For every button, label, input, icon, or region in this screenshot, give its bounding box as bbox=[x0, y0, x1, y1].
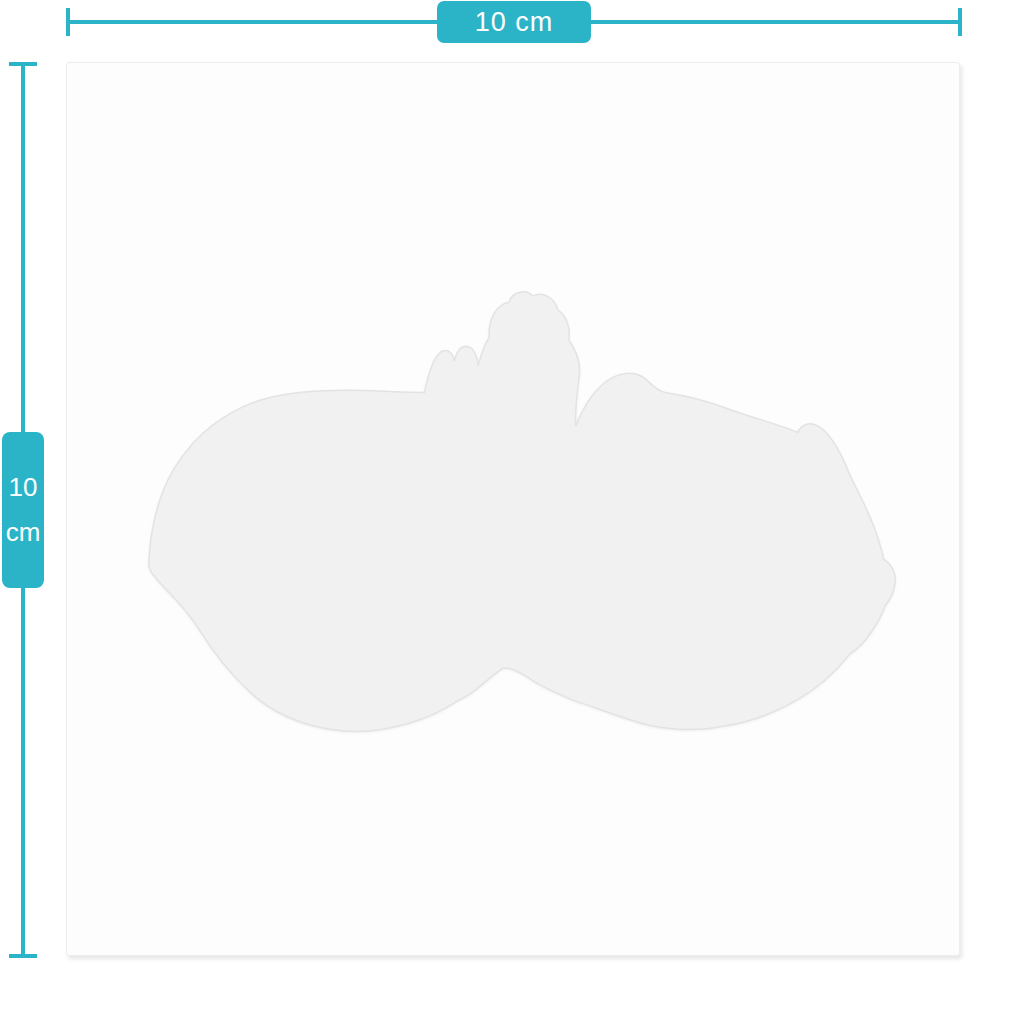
height-dimension-value: 10 bbox=[2, 472, 44, 503]
height-dimension-badge: 10 cm bbox=[2, 432, 44, 588]
height-dimension-end-cap-top bbox=[9, 62, 37, 66]
product-card bbox=[66, 62, 960, 956]
width-dimension: 10 cm bbox=[66, 0, 962, 44]
width-dimension-badge: 10 cm bbox=[437, 1, 591, 43]
sticker-shape bbox=[149, 292, 896, 732]
height-dimension-unit: cm bbox=[2, 517, 44, 548]
height-dimension: 10 cm bbox=[0, 62, 46, 958]
width-dimension-label: 10 cm bbox=[475, 7, 554, 37]
width-dimension-end-cap-left bbox=[66, 8, 70, 36]
sticker-silhouette bbox=[67, 63, 959, 955]
height-dimension-end-cap-bottom bbox=[9, 954, 37, 958]
size-diagram: 10 cm 10 cm bbox=[0, 0, 1024, 1024]
width-dimension-end-cap-right bbox=[958, 8, 962, 36]
